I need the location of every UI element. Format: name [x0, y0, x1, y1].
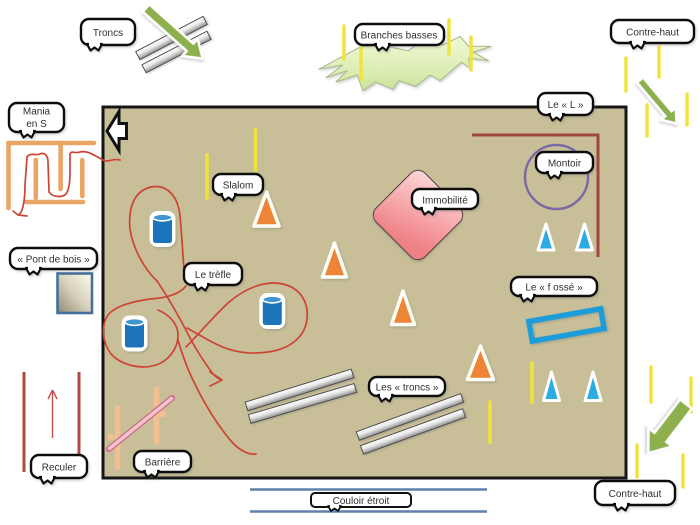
svg-text:Le trèfle: Le trèfle	[195, 270, 232, 281]
svg-text:en S: en S	[26, 119, 47, 130]
svg-text:Mania: Mania	[23, 107, 51, 118]
svg-text:Contre-haut: Contre-haut	[609, 489, 662, 500]
svg-text:Contre-haut: Contre-haut	[626, 28, 679, 39]
svg-text:Slalom: Slalom	[223, 181, 254, 192]
svg-text:Barrière: Barrière	[145, 458, 181, 469]
svg-text:Branches basses: Branches basses	[361, 31, 438, 42]
svg-text:Les « troncs »: Les « troncs »	[376, 383, 439, 394]
svg-text:Couloir étroit: Couloir étroit	[333, 496, 390, 507]
svg-text:Reculer: Reculer	[42, 463, 77, 474]
svg-text:Troncs: Troncs	[93, 28, 123, 39]
svg-text:Montoir: Montoir	[548, 159, 582, 170]
svg-text:« Pont de bois »: « Pont de bois »	[17, 255, 90, 266]
svg-text:Le « L »: Le « L »	[548, 100, 584, 111]
svg-text:Le « f ossé »: Le « f ossé »	[525, 283, 583, 294]
svg-text:Immobilité: Immobilité	[422, 196, 468, 207]
